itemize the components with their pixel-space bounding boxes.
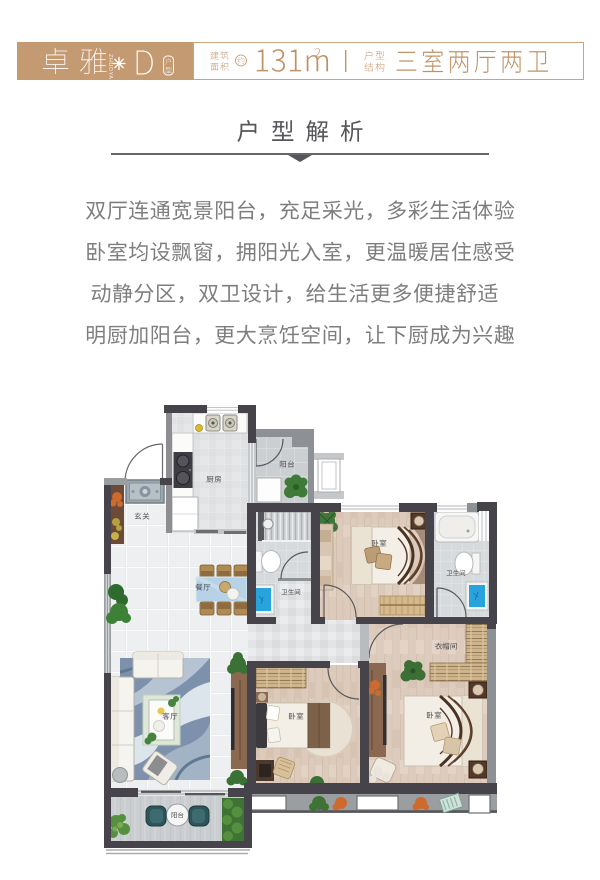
svg-text:ZHUOYA: ZHUOYA (107, 54, 113, 80)
